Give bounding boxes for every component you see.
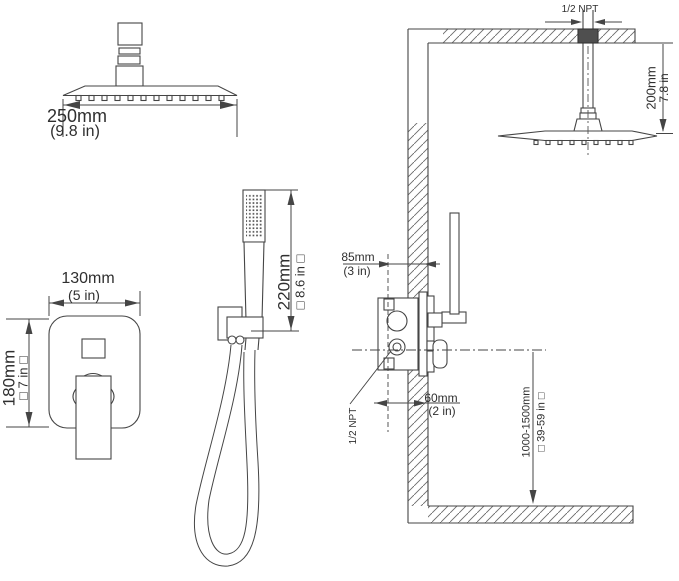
escutcheon-edge [419,292,427,376]
dim-mount-height-in: □ 39-59 in □ [537,392,548,451]
dim-wall-offset-in: (2 in) [428,405,455,417]
hand-shower-view [194,190,299,566]
ceiling-hatch [443,29,635,43]
dim-valve-width-in: (5 in) [68,288,100,302]
dim-hand-height-mm: 220mm [276,254,293,311]
dim-valve-depth-in: (3 in) [343,265,370,277]
ceiling-fitting [578,29,598,43]
dim-arm-length-mm: 200mm [645,66,658,109]
rain-head-nozzles [534,141,633,145]
floor-hatch [428,506,633,523]
hand-shower-side [450,213,459,314]
dim-arm-length-in: 7.8 in [658,73,670,102]
dim-hand-height-in: □ 8.6 in □ [294,255,307,310]
label-valve-thread: 1/2 NPT [349,408,359,445]
spray-face [246,194,262,238]
technical-drawing: 250mm (9.8 in) 130mm (5 in) 180mm □ 7 in… [0,0,679,581]
diagram-linework [0,0,679,581]
dim-valve-depth-mm: 85mm [341,251,374,263]
shower-hose [194,345,258,566]
dim-valve-width-mm: 130mm [61,271,114,287]
dim-head-width-in: (9.8 in) [50,124,100,140]
dim-mount-height-mm: 1000-1500mm [522,387,533,458]
shower-head-nozzles [76,96,224,101]
valve-lever [433,340,447,368]
installation-side-view [343,10,673,523]
dim-wall-offset-mm: 60mm [424,392,457,404]
rain-head-profile [498,131,657,141]
npt-leader-line [350,351,391,404]
dim-valve-height-in: □ 7 in □ [17,356,30,400]
label-ceiling-thread: 1/2 NPT [562,5,599,15]
